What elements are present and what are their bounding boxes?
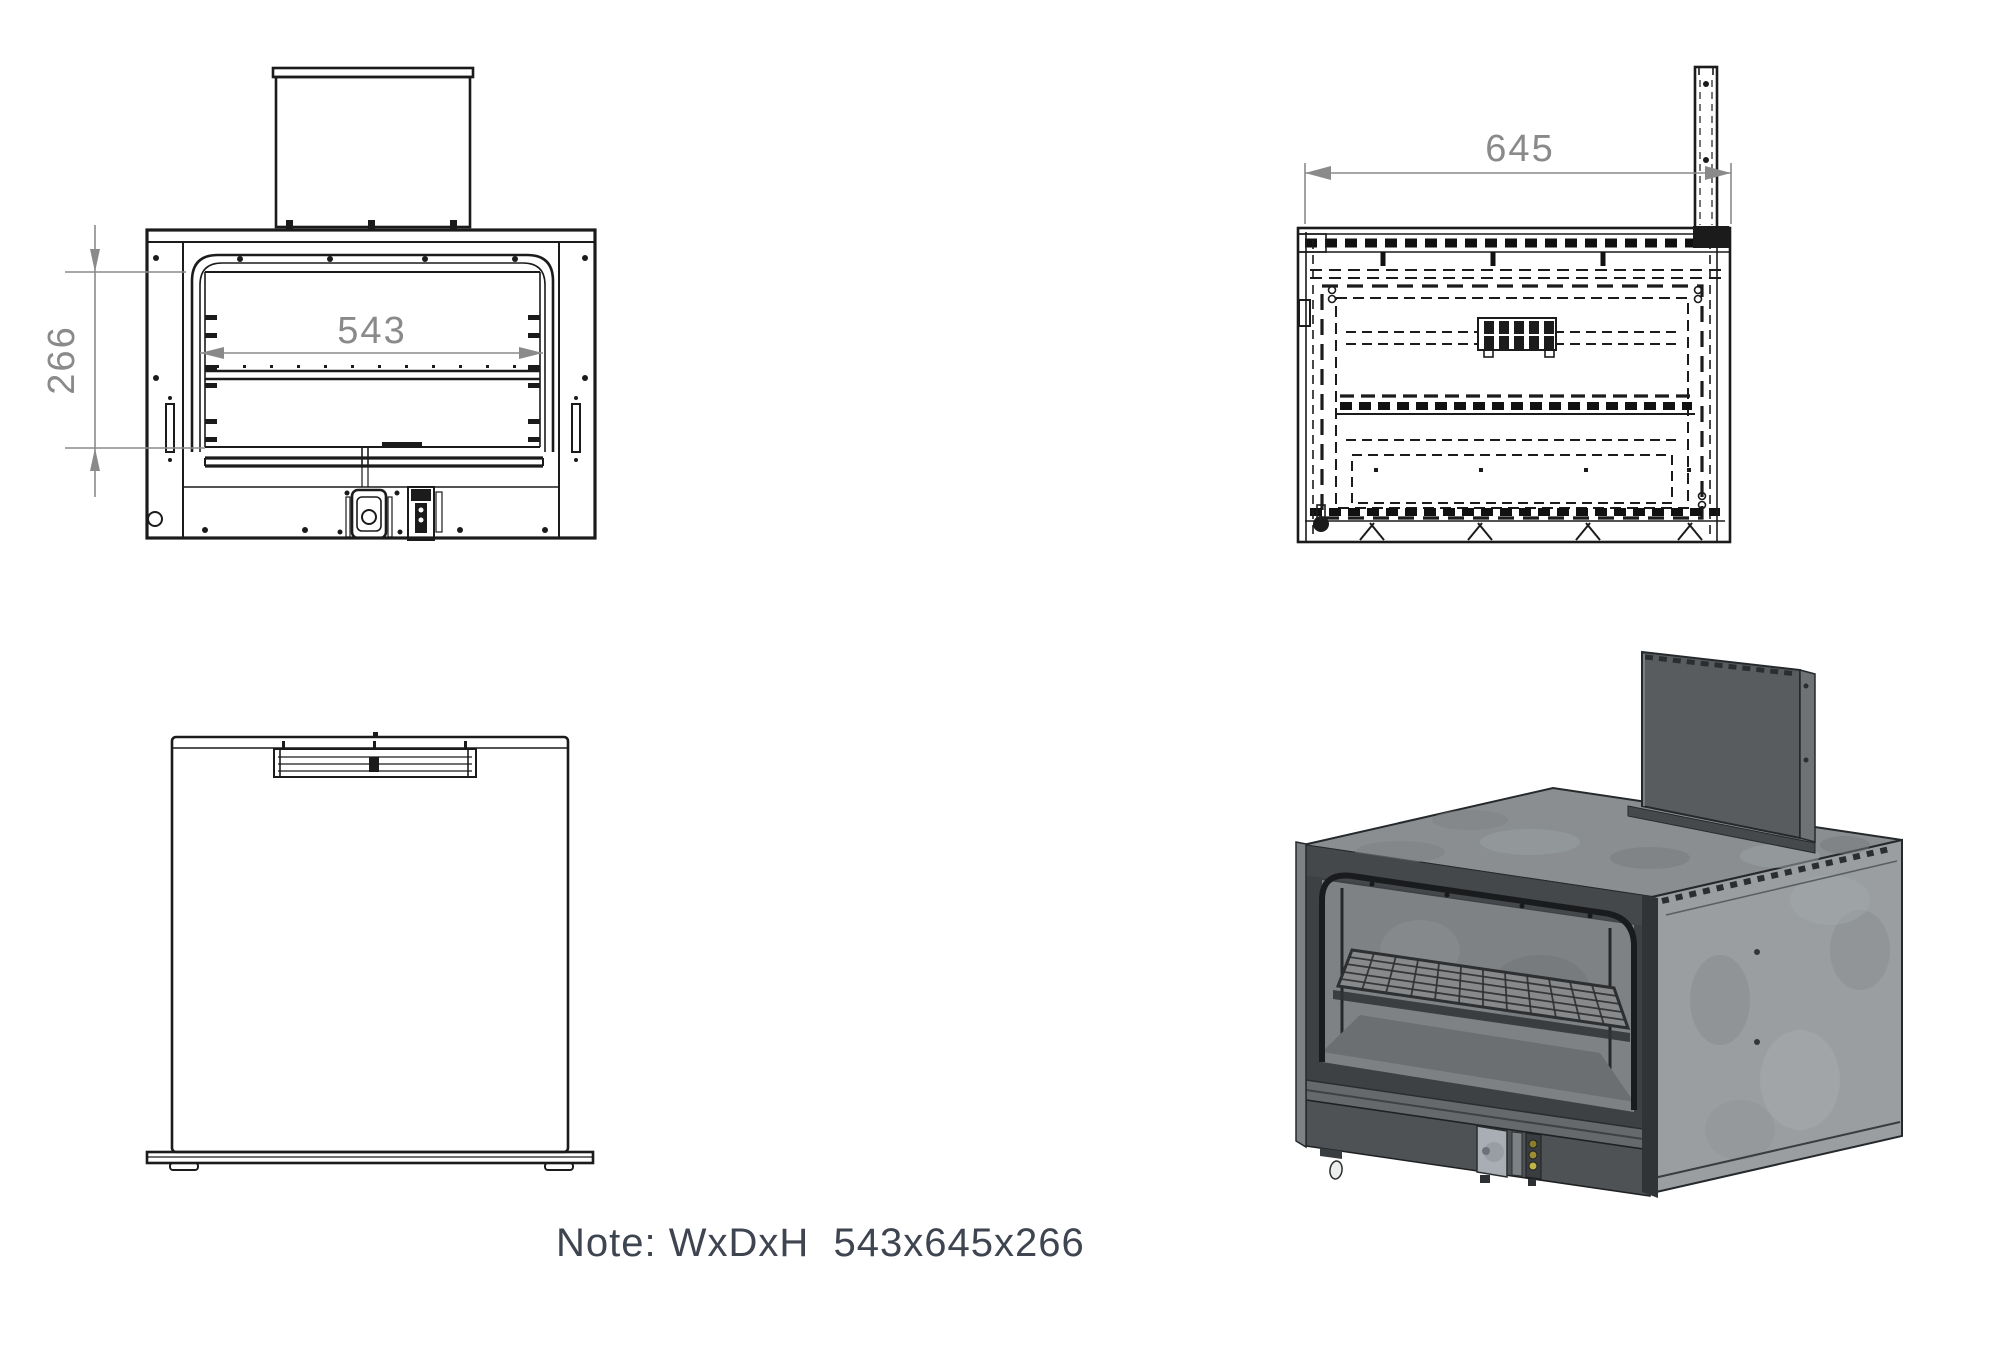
note-text: Note: WxDxH 543x645x266	[556, 1221, 1085, 1266]
depth-dimension-label: 645	[1485, 128, 1554, 170]
depth-dimension: 645	[1305, 128, 1731, 224]
gas-valve-front	[338, 490, 403, 538]
drawing-canvas: 543 266	[0, 0, 2000, 1357]
width-dimension-label: 543	[337, 310, 406, 352]
height-dimension-label: 266	[41, 325, 83, 394]
igniter-front	[408, 487, 442, 540]
top-view-drawing	[147, 732, 593, 1170]
width-dimension: 543	[200, 310, 543, 359]
isometric-rendering	[1296, 652, 1902, 1198]
rear-bracket	[1693, 67, 1729, 248]
shelf-tick-row	[216, 365, 516, 368]
height-dimension: 266	[41, 225, 205, 497]
burner-hatch-marks	[1360, 523, 1702, 540]
terminal-block	[1478, 318, 1556, 357]
drawing-sheet: 543 266	[0, 0, 2000, 1357]
iso-gas-valve	[1477, 1126, 1522, 1183]
front-view-drawing	[147, 68, 595, 540]
back-panel-mount-top	[274, 741, 476, 777]
